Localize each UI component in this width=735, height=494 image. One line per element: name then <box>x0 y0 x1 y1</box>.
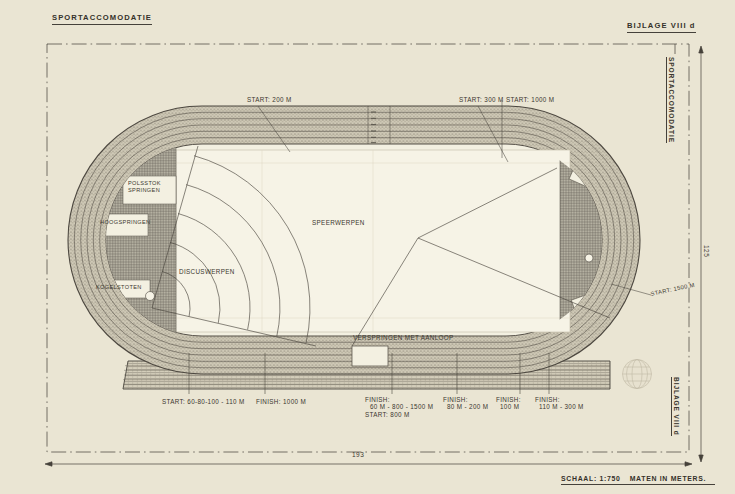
long-jump-pit <box>352 346 388 366</box>
label-line: 100 M <box>496 403 521 410</box>
side-appendix-vertical: BIJLAGE VIII d <box>671 377 680 436</box>
page-title: SPORTACCOMODATIE <box>52 13 152 25</box>
bottom-label-finish-110-300: FINISH: 110 M - 300 M <box>535 396 584 411</box>
bottom-label-finish-1000: FINISH: 1000 M <box>256 398 306 405</box>
label-line: FINISH: <box>365 396 433 403</box>
throwing-circle <box>146 292 155 301</box>
height-dimension-value: 125 <box>703 245 710 257</box>
label-line: START: 800 M <box>365 411 433 418</box>
shot-put-label: KOGELSTOTEN <box>96 284 142 291</box>
globe-stamp-icon <box>623 360 652 389</box>
bottom-label-start-sprints: START: 60-80-100 - 110 M <box>162 398 245 405</box>
side-title-vertical: SPORTACCOMODATIE <box>666 57 675 143</box>
label-line: 60 M - 800 - 1500 M <box>365 403 433 410</box>
drawing-sheet: { "colors": { "paper": "#eae5d3", "ink":… <box>0 0 735 494</box>
bottom-label-finish-80-200: FINISH: 80 M - 200 M <box>443 396 488 411</box>
appendix-label: BIJLAGE VIII d <box>627 21 696 33</box>
label-line: START: 60-80-100 - 110 M <box>162 398 245 405</box>
start-300m-label: START: 300 M <box>459 96 504 103</box>
scale-value: SCHAAL: 1:750 <box>561 475 621 482</box>
units-note: MATEN IN METERS. <box>630 475 707 482</box>
label-line: 110 M - 300 M <box>535 403 584 410</box>
label-line: 80 M - 200 M <box>443 403 488 410</box>
label-line: FINISH: <box>496 396 521 403</box>
throwing-circle <box>585 254 593 262</box>
bottom-label-finish-60-800-1500: FINISH: 60 M - 800 - 1500 M START: 800 M <box>365 396 433 418</box>
bottom-label-finish-100: FINISH: 100 M <box>496 396 521 411</box>
label-line: FINISH: <box>535 396 584 403</box>
width-dimension-value: 193 <box>352 451 364 458</box>
athletics-track-drawing <box>0 0 735 494</box>
sports-field <box>176 150 570 332</box>
discus-label: DISCUSWERPEN <box>179 268 235 275</box>
scale-note: SCHAAL: 1:750MATEN IN METERS. <box>561 475 715 485</box>
plan-drawing-area: SPORTACCOMODATIE BIJLAGE VIII d SPORTACC… <box>0 0 735 494</box>
long-jump-label: VERSPRINGEN MET AANLOOP <box>353 334 454 341</box>
high-jump-label: HOOGSPRINGEN <box>100 219 151 226</box>
pole-vault-line2: SPRINGEN <box>128 187 161 194</box>
label-line: FINISH: 1000 M <box>256 398 306 405</box>
javelin-label: SPEERWERPEN <box>312 219 365 226</box>
start-1000m-label: START: 1000 M <box>506 96 554 103</box>
pole-vault-label: POLSSTOK SPRINGEN <box>128 180 161 195</box>
start-200m-label: START: 200 M <box>247 96 292 103</box>
label-line: FINISH: <box>443 396 488 403</box>
pole-vault-line1: POLSSTOK <box>128 180 161 187</box>
